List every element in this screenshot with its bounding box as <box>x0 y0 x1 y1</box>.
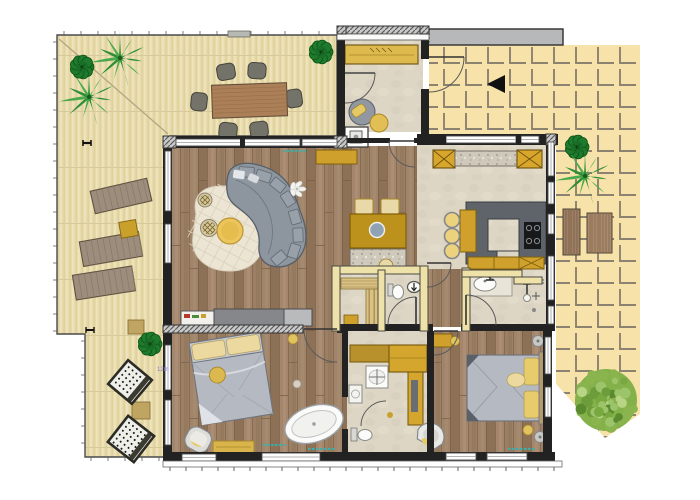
svg-text:12m: 12m <box>157 367 169 373</box>
